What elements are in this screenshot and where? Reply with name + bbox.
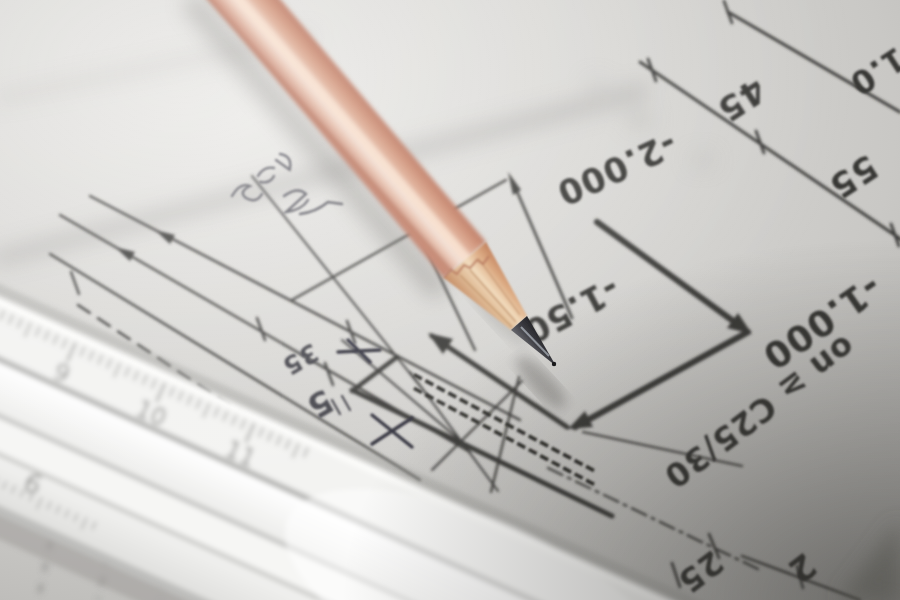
dark-vignette — [0, 0, 900, 600]
photo-canvas: -2.000 45 55 1.0 -1.000 -1.50 on ≥ C25/3… — [0, 0, 900, 600]
photo-pencil-on-blueprint: -2.000 45 55 1.0 -1.000 -1.50 on ≥ C25/3… — [0, 0, 900, 600]
